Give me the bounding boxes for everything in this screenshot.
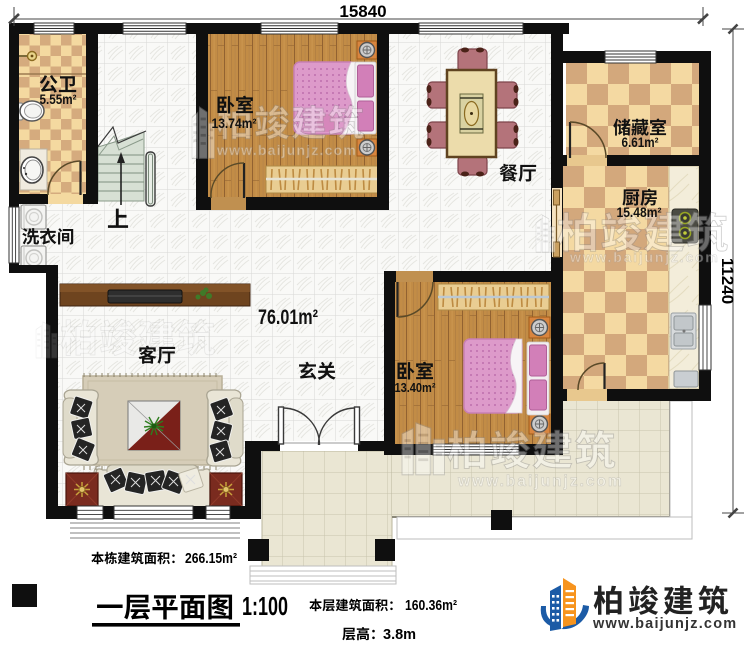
svg-text:www.baijunjz.com: www.baijunjz.com [569,249,720,265]
svg-text:5.55m²: 5.55m² [40,92,77,107]
svg-text:13.40m²: 13.40m² [395,380,437,395]
svg-text:www.baijunjz.com: www.baijunjz.com [457,473,624,490]
svg-text:11240: 11240 [718,258,737,304]
svg-text:6.61m²: 6.61m² [622,135,659,150]
svg-text:www.baijunjz.com: www.baijunjz.com [592,616,737,632]
svg-text:76.01m²: 76.01m² [258,306,318,329]
svg-text:266.15m²: 266.15m² [185,551,237,567]
svg-text:160.36m²: 160.36m² [405,598,457,614]
svg-text:3.8m: 3.8m [383,627,416,643]
svg-text:www.baijunjz.com: www.baijunjz.com [216,142,357,158]
svg-text:13.74m²: 13.74m² [212,116,257,131]
svg-text:15840: 15840 [339,2,386,21]
svg-text:15.48m²: 15.48m² [617,205,662,220]
svg-text:1:100: 1:100 [242,591,288,621]
